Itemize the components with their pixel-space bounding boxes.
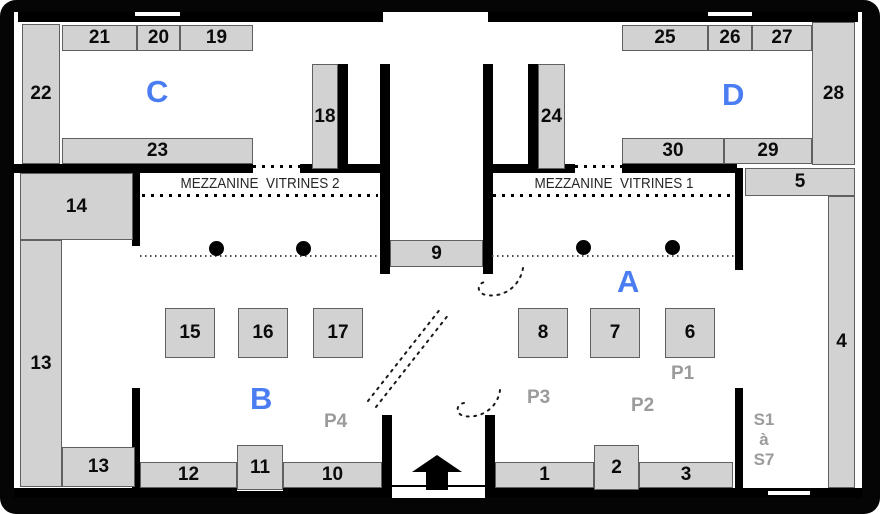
wall-segment — [382, 415, 392, 498]
wall-segment — [735, 388, 743, 488]
vitrine-29: 29 — [724, 138, 812, 164]
dotted-boundary — [493, 194, 733, 197]
wall-segment — [735, 168, 743, 270]
dotted-boundary — [575, 165, 622, 168]
vitrine-13b: 13 — [62, 447, 135, 487]
dotted-boundary — [142, 194, 378, 197]
vitrine-25: 25 — [622, 25, 708, 51]
stairs-label-line: S1 — [744, 410, 784, 430]
path-label-P4: P4 — [324, 412, 347, 431]
door-gap — [768, 491, 810, 495]
stairs-label-line: à — [744, 430, 784, 450]
wall-segment — [752, 12, 858, 22]
vitrine-16: 16 — [238, 308, 288, 358]
wall-segment — [18, 12, 135, 22]
structural-column-1 — [209, 241, 224, 256]
vitrine-30: 30 — [622, 138, 724, 164]
wall-segment — [528, 64, 538, 173]
wall-segment — [135, 16, 180, 22]
vitrine-21: 21 — [62, 25, 137, 51]
mezzanine-vitrines-1-label: MEZZANINE VITRINES 1 — [505, 176, 723, 191]
wall-segment — [622, 164, 737, 173]
vitrine-2: 2 — [594, 445, 639, 490]
vitrine-24: 24 — [538, 64, 565, 169]
path-label-P3: P3 — [527, 388, 550, 407]
vitrine-10: 10 — [283, 462, 382, 488]
wall-segment — [708, 16, 752, 22]
structural-column-3 — [576, 240, 591, 255]
mezzanine-edge-dotted-line — [140, 255, 380, 257]
vitrine-26: 26 — [708, 25, 752, 51]
structural-column-2 — [296, 241, 311, 256]
vitrine-12: 12 — [140, 462, 237, 488]
vitrine-11: 11 — [237, 445, 283, 490]
wall-segment — [180, 12, 383, 22]
zone-label-D: D — [722, 79, 744, 110]
wall-segment — [380, 64, 390, 274]
wall-segment — [483, 64, 493, 274]
vitrine-6: 6 — [665, 308, 715, 358]
zone-label-C: C — [146, 76, 168, 107]
wall-segment — [14, 488, 382, 498]
wall-segment — [488, 12, 708, 22]
mezzanine-edge-dotted-line — [492, 255, 735, 257]
vitrine-8: 8 — [518, 308, 568, 358]
vitrine-9: 9 — [390, 240, 483, 267]
vitrine-3: 3 — [639, 462, 733, 488]
wall-segment — [132, 168, 140, 246]
vitrine-1: 1 — [495, 462, 594, 488]
vitrine-15: 15 — [165, 308, 215, 358]
path-label-P1: P1 — [671, 364, 694, 383]
stairs-label-line: S7 — [744, 450, 784, 470]
vitrine-27: 27 — [752, 25, 812, 51]
vitrine-4: 4 — [828, 196, 855, 488]
wall-segment — [338, 64, 348, 173]
vitrine-17: 17 — [313, 308, 363, 358]
structural-column-4 — [665, 240, 680, 255]
vitrine-28: 28 — [812, 22, 855, 165]
entrance-arrow — [412, 455, 462, 472]
floor-plan: MEZZANINE VITRINES 2 MEZZANINE VITRINES … — [0, 0, 880, 514]
path-label-P2: P2 — [631, 396, 654, 415]
zone-label-A: A — [617, 266, 639, 297]
stairs-s1-s7-label: S1àS7 — [744, 410, 784, 470]
mezzanine-vitrines-2-label: MEZZANINE VITRINES 2 — [152, 176, 368, 191]
wall-segment — [485, 415, 495, 498]
vitrine-23: 23 — [62, 138, 253, 164]
vitrine-18: 18 — [312, 64, 338, 169]
vitrine-5: 5 — [745, 168, 855, 196]
zone-label-B: B — [250, 383, 272, 414]
vitrine-22: 22 — [22, 24, 60, 164]
vitrine-19: 19 — [180, 25, 253, 51]
vitrine-14: 14 — [20, 173, 133, 240]
dotted-boundary — [253, 165, 300, 168]
vitrine-7: 7 — [590, 308, 640, 358]
entrance-arrow-stem — [426, 471, 448, 490]
vitrine-20: 20 — [137, 25, 180, 51]
vitrine-13: 13 — [20, 240, 62, 487]
